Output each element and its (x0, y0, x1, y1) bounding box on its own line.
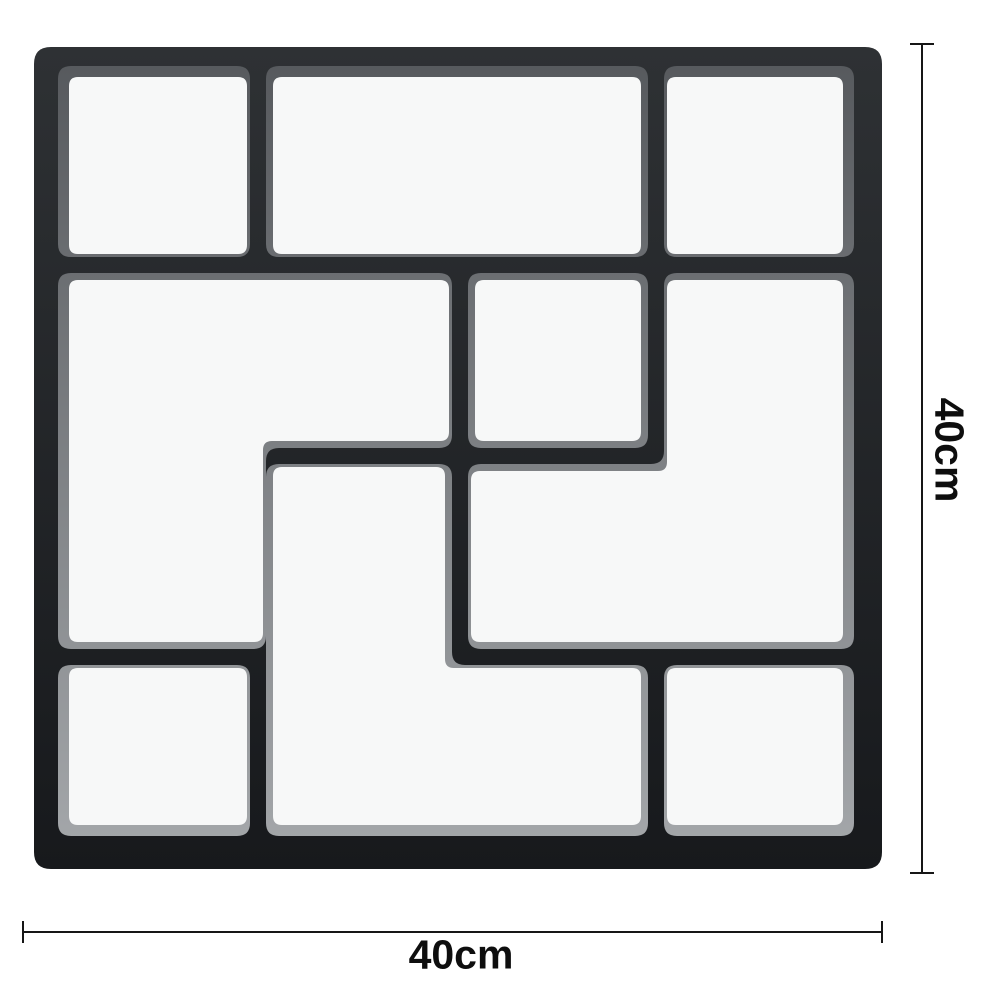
paving-mold-product-photo (0, 0, 1000, 1000)
width-dimension-cap-left (22, 921, 24, 943)
height-dimension-line (921, 44, 923, 873)
bottom-right-square-cavity (667, 668, 843, 825)
height-dimension-cap-top (910, 43, 934, 45)
product-image: 40cm 40cm (0, 0, 1000, 1000)
height-dimension-label: 40cm (929, 398, 970, 503)
top-left-square-cavity (69, 77, 247, 254)
center-square-cavity (475, 280, 641, 441)
width-dimension-label: 40cm (409, 935, 514, 976)
top-middle-rect-cavity (273, 77, 641, 254)
height-dimension-cap-bottom (910, 872, 934, 874)
width-dimension-cap-right (881, 921, 883, 943)
top-right-square-cavity (667, 77, 843, 254)
bottom-left-square-cavity (69, 668, 247, 825)
